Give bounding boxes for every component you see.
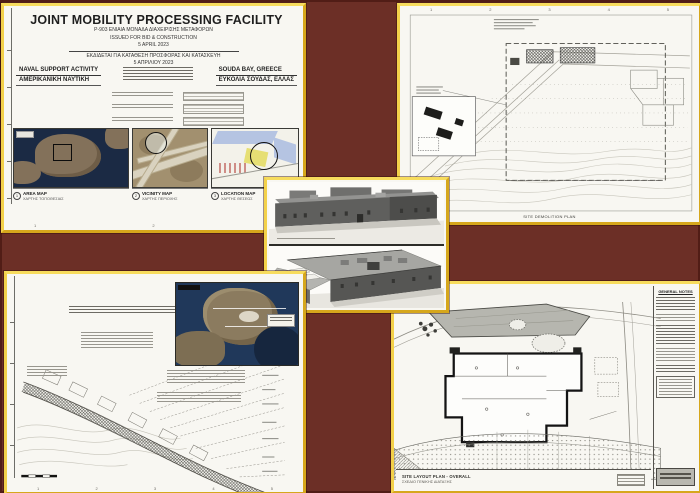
legend-box	[656, 376, 695, 398]
sheet-frame-line	[11, 8, 12, 204]
mainland	[175, 331, 225, 366]
signature-line	[112, 92, 173, 97]
title-block-line	[660, 477, 691, 479]
map-label-gr: ΧΑΡΤΗΣ ΠΕΡΙΟΧΗΣ	[142, 197, 178, 201]
leader-line	[213, 308, 286, 309]
area-map: 1 AREA MAP ΧΑΡΤΗΣ ΤΟΠΟΘΕΣΙΑΣ	[13, 128, 129, 202]
ruler-tick: 5	[271, 486, 273, 491]
caption-lines: SITE LAYOUT PLAN - OVERALL ΣΧΕΔΙΟ ΓΕΝΙΚΗ…	[402, 474, 471, 485]
key-maps-row: 1 AREA MAP ΧΑΡΤΗΣ ΤΟΠΟΘΕΣΙΑΣ	[13, 128, 299, 202]
inset-label-box	[267, 314, 295, 327]
note-block	[81, 332, 153, 348]
note-paragraph	[656, 314, 695, 322]
ruler-tick: 1	[34, 223, 36, 228]
satellite-inset	[175, 282, 299, 366]
location-name: SOUDA BAY, GREECE	[216, 66, 297, 76]
fine-print-block	[123, 67, 193, 80]
map-label-gr: ΧΑΡΤΗΣ ΤΟΠΟΘΕΣΙΑΣ	[23, 197, 64, 201]
issue-line-greek: ΕΚΔΙΔΕΤΑΙ ΓΙΑ ΚΑΤΑΘΕΣΗ ΠΡΟΣΦΟΡΑΣ ΚΑΙ ΚΑΤ…	[4, 53, 303, 61]
project-title: JOINT MOBILITY PROCESSING FACILITY	[16, 13, 297, 27]
agency-location-row: NAVAL SUPPORT ACTIVITY ΑΜΕΡΙΚΑΝΙΚΗ ΝΑΥΤΙ…	[16, 66, 297, 86]
legend-entries	[659, 379, 692, 395]
title-block	[656, 468, 695, 486]
note-block	[167, 370, 245, 383]
map-label-gr: ΧΑΡΤΗΣ ΘΕΣΕΩΣ	[221, 197, 253, 201]
bottom-ruler: 1 2 3	[34, 223, 273, 228]
notes-title: GENERAL NOTES	[656, 289, 695, 294]
rendering-caption-text	[277, 238, 335, 241]
location-name-greek: ΕΥΚΟΛΙΑ ΣΟΥΔΑΣ, ΕΛΛΑΣ	[216, 76, 297, 86]
vicinity-map-caption: 2 VICINITY MAP ΧΑΡΤΗΣ ΠΕΡΙΟΧΗΣ	[132, 188, 208, 202]
top-ruler: 1 2 3 4 5	[430, 7, 669, 12]
caption-en: SITE LAYOUT PLAN - OVERALL	[402, 474, 471, 480]
building-rendering-front	[269, 182, 444, 244]
map-label-en: VICINITY MAP	[142, 191, 172, 196]
deep-water	[254, 326, 299, 366]
map-label-en: LOCATION MAP	[221, 191, 255, 196]
note-block	[157, 392, 241, 402]
agency-block: NAVAL SUPPORT ACTIVITY ΑΜΕΡΙΚΑΝΙΚΗ ΝΑΥΤΙ…	[16, 66, 101, 86]
vicinity-map-image	[132, 128, 208, 188]
area-map-caption: 1 AREA MAP ΧΑΡΤΗΣ ΤΟΠΟΘΕΣΙΑΣ	[13, 188, 129, 202]
landmass	[105, 128, 129, 149]
bottom-ruler: 1 2 3 4 5	[37, 486, 273, 491]
map-label: LOCATION MAP ΧΑΡΤΗΣ ΘΕΣΕΩΣ	[221, 191, 255, 202]
map-scale-chip	[16, 131, 34, 138]
title-block-line	[660, 473, 691, 475]
layout-plan-drawing	[394, 284, 661, 491]
signature-area	[112, 92, 244, 126]
ruler-tick: 4	[608, 7, 610, 12]
inset-label-text	[270, 317, 292, 323]
vicinity-map: 2 VICINITY MAP ΧΑΡΤΗΣ ΠΕΡΙΟΧΗΣ	[132, 128, 208, 202]
caption-scale-box	[617, 474, 645, 486]
general-notes-column: GENERAL NOTES	[653, 286, 697, 489]
inset-tag	[178, 285, 200, 290]
signature-box	[183, 117, 244, 126]
building-3d-front-view	[269, 182, 444, 244]
title-separator	[69, 51, 239, 52]
agency-name-greek: ΑΜΕΡΙΚΑΝΙΚΗ ΝΑΥΤΙΚΗ	[16, 76, 101, 86]
project-number-line: P-903 ΕΝΙΑΙΑ ΜΟΝΑΔΑ ΔΙΑΧΕΙΡΙΣΗΣ ΜΕΤΑΦΟΡΩ…	[4, 27, 303, 35]
issue-line: ISSUED FOR BID & CONSTRUCTION	[4, 35, 303, 43]
title-sheet-panel: JOINT MOBILITY PROCESSING FACILITY P-903…	[1, 3, 306, 233]
note-paragraph	[656, 365, 695, 373]
signature-line	[112, 117, 173, 122]
note-paragraph	[656, 348, 695, 362]
ruler-tick: 2	[152, 223, 154, 228]
note-paragraph	[656, 325, 695, 345]
figure-number: 2	[132, 192, 140, 200]
signature-box	[183, 104, 244, 113]
ruler-tick: 2	[95, 486, 97, 491]
location-marker	[250, 142, 278, 170]
figure-number: 1	[13, 192, 21, 200]
note-block	[27, 366, 67, 376]
map-label-en: AREA MAP	[23, 191, 47, 196]
figure-number: 3	[211, 192, 219, 200]
agency-name: NAVAL SUPPORT ACTIVITY	[16, 66, 101, 76]
ruler-tick: 3	[548, 7, 550, 12]
ruler-tick: 1	[430, 7, 432, 12]
ruler-tick: 2	[489, 7, 491, 12]
ruler-tick: 5	[667, 7, 669, 12]
ruler-tick: 4	[212, 486, 214, 491]
issue-date: 5 APRIL 2023	[4, 42, 303, 50]
caption-strip: SITE LAYOUT PLAN - OVERALL ΣΧΕΔΙΟ ΓΕΝΙΚΗ…	[396, 469, 651, 489]
caption-gr: ΣΧΕΔΙΟ ΓΕΝΙΚΗΣ ΔΙΑΤΑΞΗΣ	[402, 480, 471, 485]
area-marker	[53, 144, 72, 161]
ruler-tick: 3	[154, 486, 156, 491]
area-map-image	[13, 128, 129, 188]
location-block: SOUDA BAY, GREECE ΕΥΚΟΛΙΑ ΣΟΥΔΑΣ, ΕΛΛΑΣ	[216, 66, 297, 86]
ruler-tick: 1	[37, 486, 39, 491]
note-paragraph	[656, 297, 695, 311]
signature-line	[112, 104, 173, 109]
map-label: AREA MAP ΧΑΡΤΗΣ ΤΟΠΟΘΕΣΙΑΣ	[23, 191, 64, 202]
map-label: VICINITY MAP ΧΑΡΤΗΣ ΠΕΡΙΟΧΗΣ	[142, 191, 178, 202]
road-plan-panel: 1 2 3 4 5	[4, 271, 306, 493]
signature-box	[183, 92, 244, 101]
